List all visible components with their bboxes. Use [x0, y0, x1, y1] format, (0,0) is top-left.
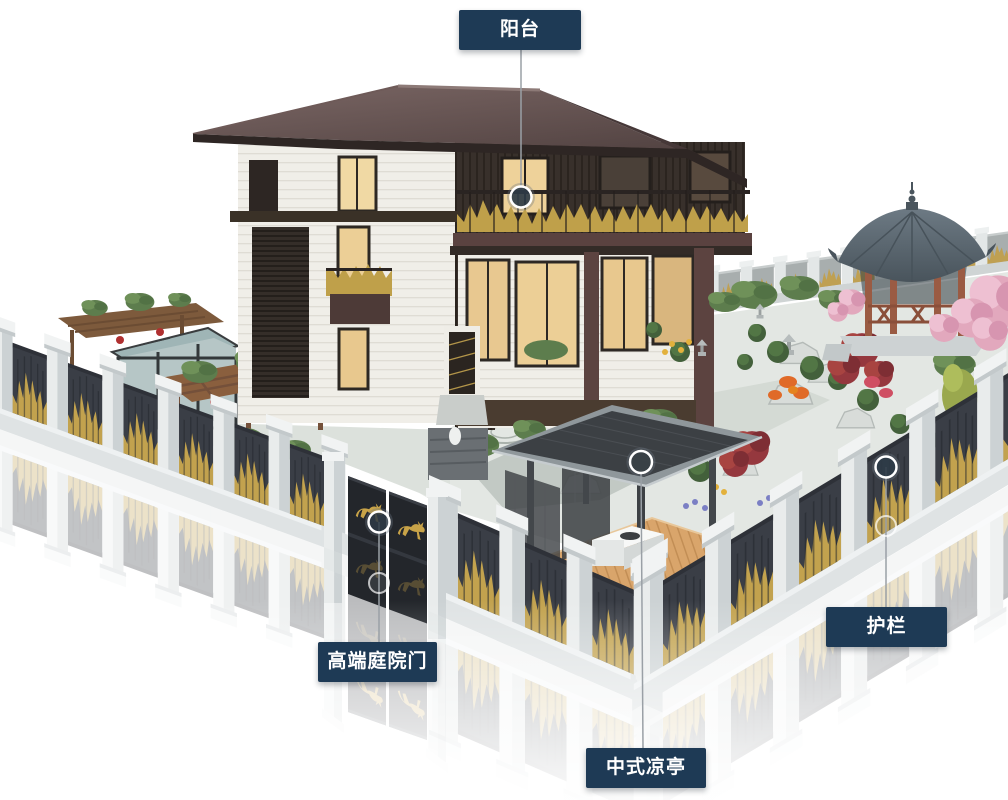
callout-gate-label: 高端庭院门: [318, 642, 437, 682]
callout-railing-label: 护栏: [826, 607, 947, 647]
pavilion-marker: [628, 449, 655, 476]
annotated-villa-diagram: 阳台 高端庭院门 中式凉亭 护栏: [0, 0, 1008, 800]
balcony-marker: [508, 184, 534, 210]
villa-scene-illustration: [0, 0, 1008, 800]
rock-water-wall: [428, 427, 488, 480]
villa-house: [193, 86, 752, 430]
callout-pavilion-label: 中式凉亭: [586, 748, 706, 788]
callout-balcony-label: 阳台: [459, 10, 581, 50]
